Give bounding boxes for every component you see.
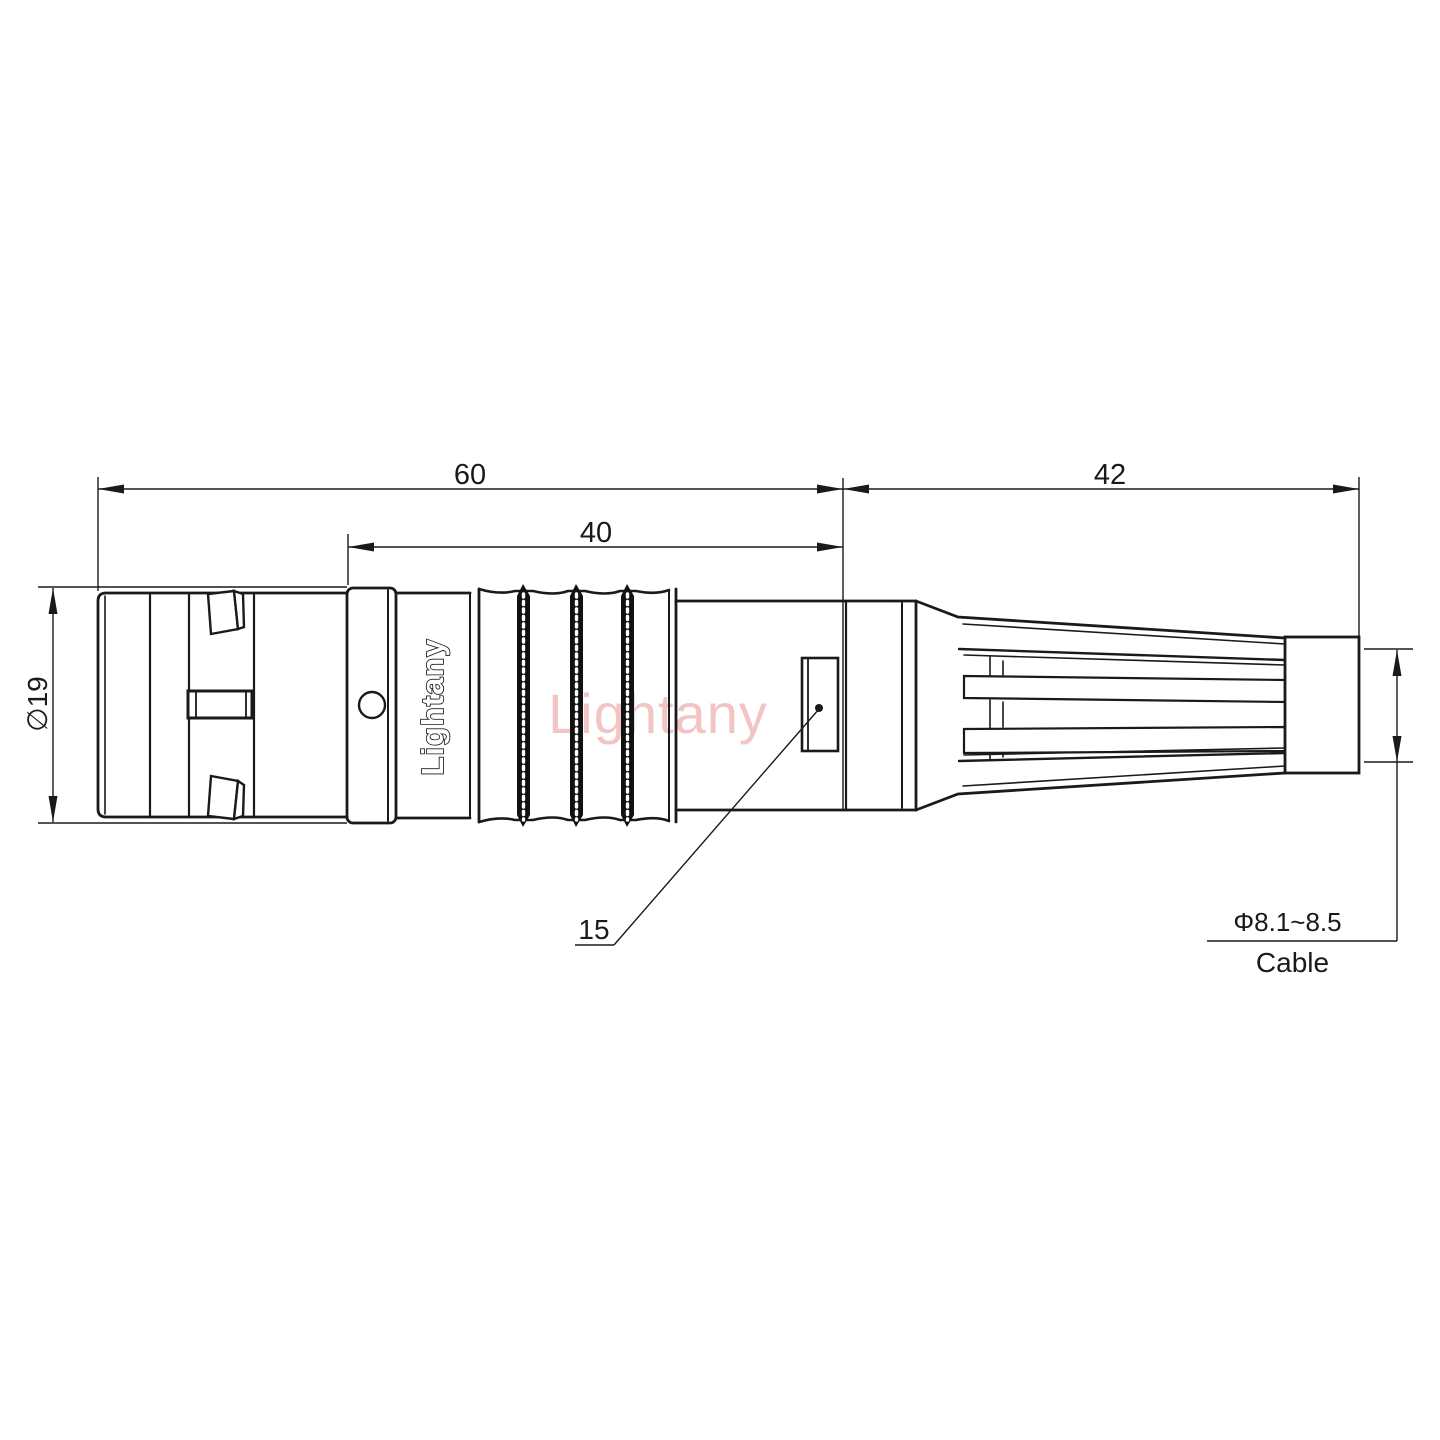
dimension-value-total-length: 60 — [410, 459, 530, 492]
strain-relief — [916, 601, 1285, 810]
rear-body — [676, 601, 916, 810]
connector-body — [98, 584, 1359, 827]
coupling-collar — [347, 588, 396, 823]
key-slot — [188, 691, 252, 718]
dimension-value-body-length: 40 — [536, 517, 656, 550]
cable-diameter-range: Φ8.1~8.5 — [1205, 907, 1370, 938]
dimension-value-boot-length: 42 — [1050, 459, 1170, 492]
leader-dot — [815, 704, 823, 712]
knurl-bands — [517, 584, 634, 827]
dimension-value-flange-diameter: ∅19 — [21, 644, 53, 764]
technical-drawing-canvas: Lightany — [0, 0, 1440, 1440]
front-barrel — [98, 591, 347, 819]
leader-15 — [575, 704, 823, 945]
key-tab-top — [208, 591, 244, 634]
knurl-section — [479, 584, 676, 827]
collar-hole — [359, 692, 385, 718]
dimension-value-feature: 15 — [564, 914, 624, 946]
cable-label: Cable — [1205, 947, 1380, 979]
body-logo-text: Lightany — [415, 632, 451, 782]
key-tab-bottom — [208, 776, 244, 819]
cable-boot-end — [1285, 637, 1359, 773]
connector-line-art — [0, 0, 1440, 1440]
